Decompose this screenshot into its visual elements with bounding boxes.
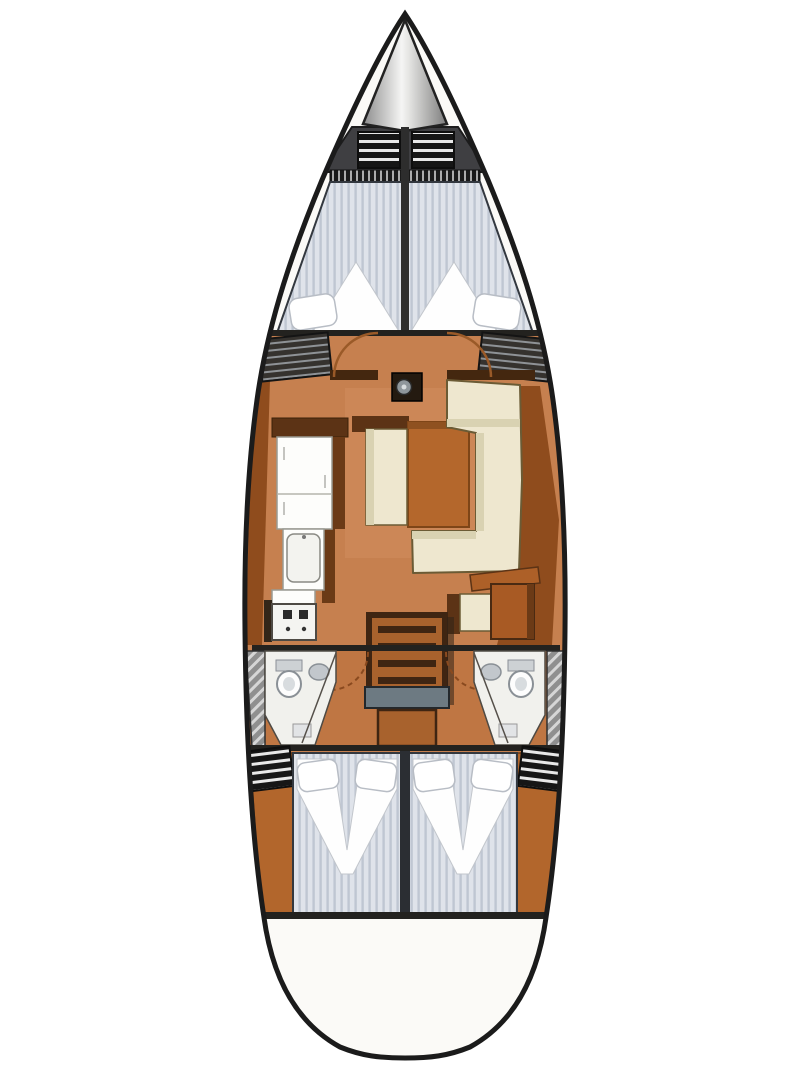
aft-berth-divider (400, 751, 410, 916)
stair-step-4 (378, 677, 436, 684)
sofa-shade-bottom-arm (412, 531, 476, 539)
mast-post-center (402, 385, 407, 390)
stove-side-strip (264, 600, 272, 642)
stove-knob-2 (302, 627, 306, 631)
galley-stove (272, 604, 316, 640)
stove-knob-1 (286, 627, 290, 631)
heads-bulkhead (252, 645, 560, 651)
sofa-shade-top-arm (447, 419, 520, 427)
vberth-pillow-starboard (472, 293, 522, 332)
nav-seat (460, 594, 491, 631)
galley-edge-upper (332, 437, 345, 529)
keel-center-line (401, 127, 409, 333)
salon-table (408, 422, 469, 527)
center-bench-shade (366, 429, 374, 525)
toilet-tank-starboard (508, 660, 534, 671)
galley-counter-fridge (277, 437, 332, 529)
aft-pillow-port-2 (354, 758, 398, 792)
cabin-wall-port (330, 370, 378, 380)
toilet-starboard-bowl (515, 677, 527, 691)
landing-step (365, 687, 449, 708)
aft-pillow-port-1 (296, 758, 340, 792)
toilet-tank-port (276, 660, 302, 671)
vberth-pillow-port (288, 293, 338, 332)
chart-table-edge (527, 584, 534, 639)
galley-counter-small (272, 590, 315, 604)
floorplan-svg (0, 0, 810, 1080)
aft-pillow-starboard-1 (412, 758, 456, 792)
galley-faucet (302, 535, 306, 539)
sofa-shade-right-arm (476, 433, 484, 531)
bow-hatch-port (358, 132, 400, 168)
stove-burner-1 (283, 610, 292, 619)
stove-burner-2 (299, 610, 308, 619)
galley-sink-basin (287, 534, 320, 582)
yacht-floorplan-canvas (0, 0, 810, 1080)
berth-foot-line (261, 912, 551, 919)
aft-pillow-starboard-2 (470, 758, 514, 792)
stair-step-3 (378, 660, 436, 667)
engine-box (378, 710, 436, 746)
aft-bulkhead (250, 745, 562, 751)
bow-hatch-starboard (412, 132, 454, 168)
galley-cap (272, 418, 348, 437)
toilet-port-bowl (283, 677, 295, 691)
stair-step-1 (378, 626, 436, 633)
